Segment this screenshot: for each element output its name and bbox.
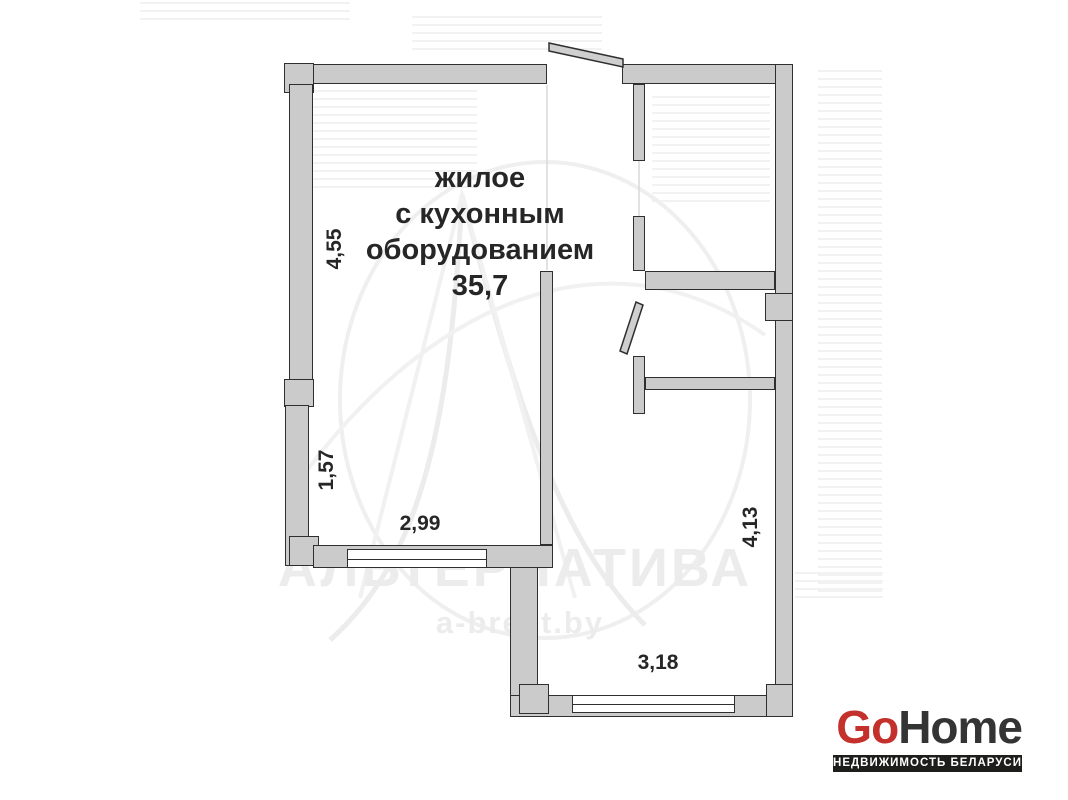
- room-label-line3: оборудованием: [366, 232, 594, 268]
- entry-door-leaf-icon: [549, 43, 623, 67]
- room-label-line1: жилое: [366, 160, 594, 196]
- gohome-logo-home: Home: [898, 701, 1022, 753]
- floor-plan-image: АЛЬТЕРНАТИВА a-brest.by жилое с кухонным…: [0, 0, 1068, 800]
- dimension-left-upper: 4,55: [323, 229, 347, 270]
- room-label-line2: с кухонным: [366, 196, 594, 232]
- gohome-wordmark: GoHome: [836, 702, 1022, 753]
- room-label: жилое с кухонным оборудованием 35,7: [366, 160, 594, 304]
- dimension-bottom-room: 3,18: [638, 651, 679, 675]
- room-area-value: 35,7: [366, 268, 594, 304]
- gohome-logo-go: Go: [836, 701, 898, 753]
- gohome-logo: GoHome НЕДВИЖИМОСТЬ БЕЛАРУСИ: [833, 702, 1022, 772]
- dimension-left-lower: 1,57: [315, 450, 339, 491]
- dimension-corridor: 4,13: [739, 507, 763, 548]
- door-symbols: [0, 0, 1068, 800]
- dimension-main-width: 2,99: [400, 512, 441, 536]
- gohome-tagline: НЕДВИЖИМОСТЬ БЕЛАРУСИ: [833, 755, 1022, 772]
- wc-door-leaf-icon: [620, 302, 643, 354]
